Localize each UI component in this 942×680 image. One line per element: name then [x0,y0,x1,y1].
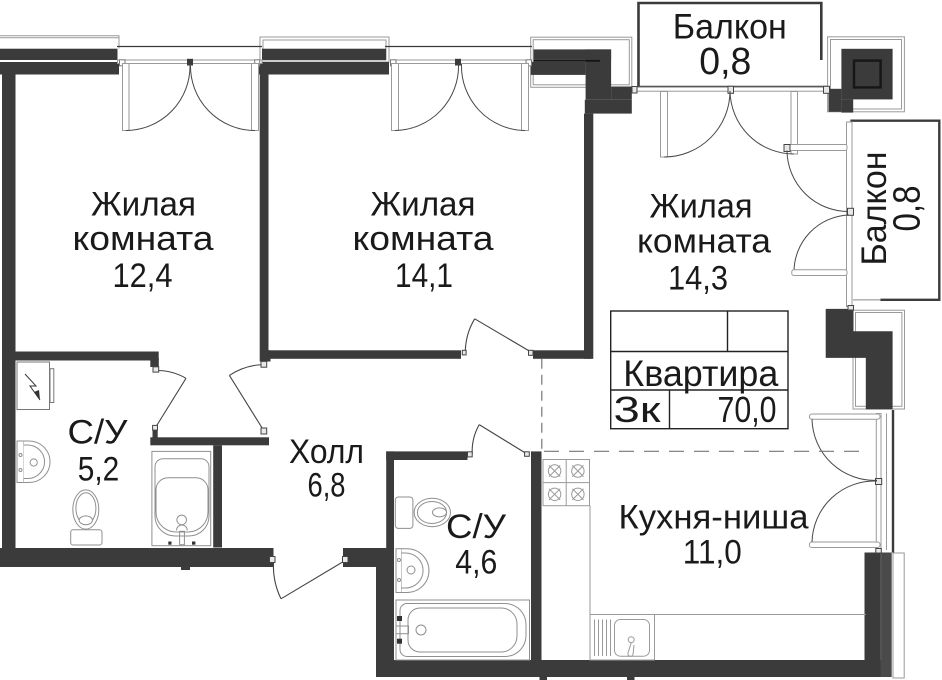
svg-text:11,0: 11,0 [683,534,742,572]
svg-text:4,6: 4,6 [455,544,497,582]
svg-text:14,3: 14,3 [668,260,728,298]
svg-text:Квартира: Квартира [623,353,778,394]
svg-text:Холл: Холл [289,433,364,471]
svg-text:14,1: 14,1 [395,257,453,295]
svg-text:Жилая: Жилая [91,186,196,224]
svg-text:Кухня-ниша: Кухня-ниша [619,499,809,537]
svg-text:12,4: 12,4 [113,257,173,295]
svg-text:0,8: 0,8 [887,186,929,232]
svg-text:С/У: С/У [68,414,128,452]
svg-text:С/У: С/У [446,508,506,546]
svg-text:3к: 3к [614,389,661,430]
svg-text:6,8: 6,8 [308,467,346,505]
svg-text:0,8: 0,8 [699,41,751,83]
svg-text:комната: комната [353,220,494,258]
svg-text:комната: комната [637,223,771,261]
svg-text:5,2: 5,2 [78,451,120,489]
svg-text:70,0: 70,0 [718,389,777,430]
svg-text:Жилая: Жилая [650,188,753,226]
svg-text:Жилая: Жилая [371,186,476,224]
svg-text:комната: комната [73,220,214,258]
